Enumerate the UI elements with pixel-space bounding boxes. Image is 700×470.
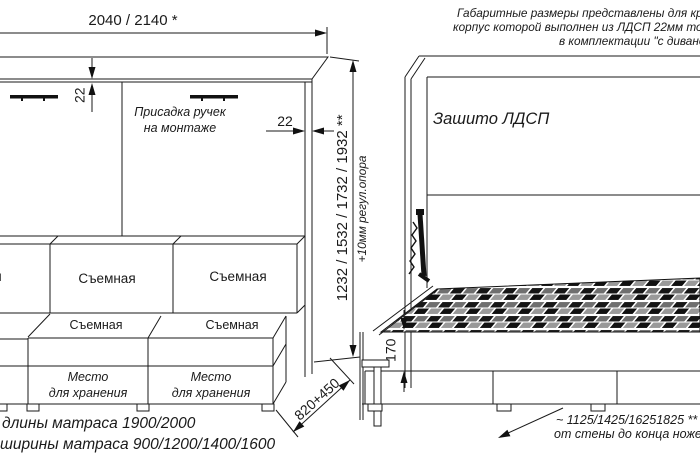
side-panel-thickness-dimension: 22 xyxy=(270,113,300,130)
seat-cushion-label-right: Съемная xyxy=(182,318,282,333)
handles-note: Присадка ручек на монтаже xyxy=(114,105,246,136)
top-panel-thickness-dimension: 22 xyxy=(72,80,89,110)
bed-slats xyxy=(373,278,700,335)
dimension-arrows-open xyxy=(401,318,511,438)
base-height-dimension: 170 xyxy=(383,300,400,400)
storage-left-line2: для хранения xyxy=(27,386,149,402)
open-cabinet-outline xyxy=(405,56,700,388)
seat-cushion-label-left: Съемная xyxy=(46,318,146,333)
footnote-mattress-length: длины матраса 1900/2000 xyxy=(2,415,195,433)
note-line2: корпус которой выполнен из ЛДСП 22мм тол… xyxy=(453,21,700,35)
sofa-feet xyxy=(0,404,274,411)
storage-right-line2: для хранения xyxy=(150,386,272,402)
floor-note-line1: ~ 1125/1425/16251825 ** xyxy=(556,413,697,428)
handles-note-line1: Присадка ручек xyxy=(114,105,246,121)
lift-mechanism-icon xyxy=(409,209,429,281)
floor-note-line2: от стены до конца ножек xyxy=(554,427,700,442)
technical-drawing-wallbed: Габаритные размеры представлены для кров… xyxy=(0,0,700,470)
storage-left-line1: Место xyxy=(27,370,149,386)
width-dimension: 2040 / 2140 * xyxy=(33,12,233,30)
door-handles xyxy=(10,95,238,101)
back-cushion-label-middle: Съемная xyxy=(57,271,157,287)
handle-right-icon xyxy=(190,95,238,99)
storage-label-left: Место для хранения xyxy=(27,370,149,401)
footnote-mattress-width: ширины матраса 900/1200/1400/1600 xyxy=(0,436,275,454)
handle-left-icon xyxy=(10,95,58,99)
height-note: +10мм регул.опора xyxy=(356,129,370,289)
handles-note-line2: на монтаже xyxy=(114,121,246,137)
back-panel-label: Зашито ЛДСП xyxy=(433,110,549,129)
height-dimension: 1232 / 1532 / 1732 / 1932 ** xyxy=(334,58,352,358)
bed-feet xyxy=(368,404,605,411)
note-line1: Габаритные размеры представлены для кров xyxy=(457,7,700,21)
note-line3: в комплектации "с диваном" xyxy=(559,35,700,49)
storage-label-right: Место для хранения xyxy=(150,370,272,401)
support-leg xyxy=(374,367,381,426)
back-cushion-label-left: Съемная xyxy=(0,269,23,285)
back-cushion-label-right: Съемная xyxy=(188,269,288,285)
storage-right-line1: Место xyxy=(150,370,272,386)
